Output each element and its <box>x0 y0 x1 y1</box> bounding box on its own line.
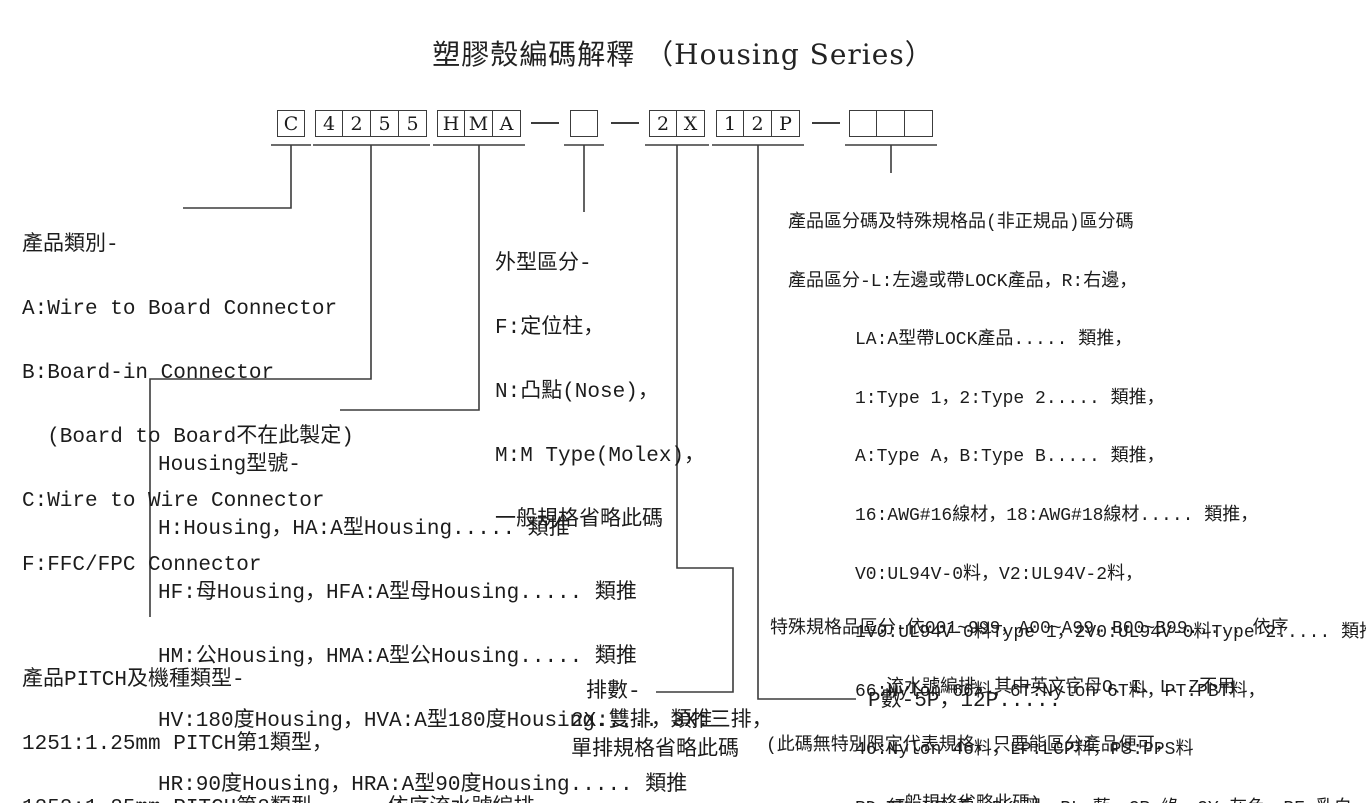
section-line: LA:A型帶LOCK產品..... 類推， <box>855 329 1366 352</box>
code-cell: H <box>437 110 465 137</box>
section-row-count-header: 排數- <box>586 679 641 707</box>
code-cell: P <box>772 110 800 137</box>
box-group-product-type: C <box>277 110 305 137</box>
code-cell: 5 <box>399 110 427 137</box>
code-cell <box>849 110 877 137</box>
section-line: (此碼無特別限定代表規格，只要能區分產品便可， <box>766 735 1288 758</box>
diagram-canvas: 塑膠殼編碼解釋 （Housing Series） C 4 2 5 5 H M A… <box>0 0 1366 803</box>
leader-housing-type <box>340 145 479 410</box>
section-line: 1:Type 1，2:Type 2..... 類推， <box>855 388 1366 411</box>
box-group-special-code <box>849 110 933 137</box>
section-line: M:M Type(Molex)， <box>495 443 705 471</box>
code-cell <box>905 110 933 137</box>
code-cell: M <box>465 110 493 137</box>
section-line: 產品區分碼及特殊規格品(非正規品)區分碼 <box>788 212 1366 235</box>
section-line: 1252:1.25mm PITCH第2類型..... 依序流水號編排， <box>22 795 555 803</box>
section-shape: 外型區分- F:定位柱， N:凸點(Nose)， M:M Type(Molex)… <box>495 215 705 571</box>
box-group-shape <box>570 110 598 137</box>
code-cell <box>570 110 598 137</box>
code-cell: X <box>677 110 705 137</box>
box-group-pin-count: 1 2 P <box>716 110 800 137</box>
code-cell: 1 <box>716 110 744 137</box>
section-line: F:定位柱， <box>495 315 705 343</box>
section-line: N:凸點(Nose)， <box>495 379 705 407</box>
code-cell: 2 <box>343 110 371 137</box>
section-header: 產品類別- <box>22 232 354 260</box>
code-cell <box>877 110 905 137</box>
section-line: 一般規格省略此碼 <box>495 507 705 535</box>
section-special-spec: 特殊規格品區分-依001~999，A00~A99，B00~B99..... 依序… <box>766 582 1288 803</box>
code-cell: 2 <box>744 110 772 137</box>
section-line: 2X:雙排，3X:三排， <box>571 708 773 736</box>
box-group-pitch-model: 4 2 5 5 <box>315 110 427 137</box>
section-line: 特殊規格品區分-依001~999，A00~A99，B00~B99..... 依序 <box>770 618 1288 641</box>
code-cell: 4 <box>315 110 343 137</box>
code-cell: A <box>493 110 521 137</box>
section-line: A:Type A，B:Type B..... 類推， <box>855 446 1366 469</box>
section-line: A:Wire to Board Connector <box>22 296 354 324</box>
section-line: 16:AWG#16線材，18:AWG#18線材..... 類推， <box>855 505 1366 528</box>
section-header: 外型區分- <box>495 251 705 279</box>
section-line: 1251:1.25mm PITCH第1類型， <box>22 731 555 759</box>
code-cell: 5 <box>371 110 399 137</box>
section-line: HF:母Housing，HFA:A型母Housing..... 類推 <box>158 580 721 608</box>
page-title: 塑膠殼編碼解釋 （Housing Series） <box>432 33 933 73</box>
section-line: B:Board-in Connector <box>22 360 354 388</box>
box-group-row-count: 2 X <box>649 110 705 137</box>
dash-separator <box>531 122 559 124</box>
box-group-housing-type: H M A <box>437 110 521 137</box>
section-line: 流水號編排，其中英文字母O、I、L、Z不用 <box>886 677 1288 700</box>
code-cell: C <box>277 110 305 137</box>
dash-separator <box>611 122 639 124</box>
section-header: 產品PITCH及機種類型- <box>22 667 555 695</box>
code-cell: 2 <box>649 110 677 137</box>
section-line: 產品區分-L:左邊或帶LOCK產品，R:右邊， <box>788 271 1366 294</box>
dash-separator <box>812 122 840 124</box>
section-line: 一般規格省略此碼) <box>886 794 1288 803</box>
section-pitch-model: 產品PITCH及機種類型- 1251:1.25mm PITCH第1類型， 125… <box>22 631 555 803</box>
section-line: 單排規格省略此碼 <box>571 737 739 765</box>
